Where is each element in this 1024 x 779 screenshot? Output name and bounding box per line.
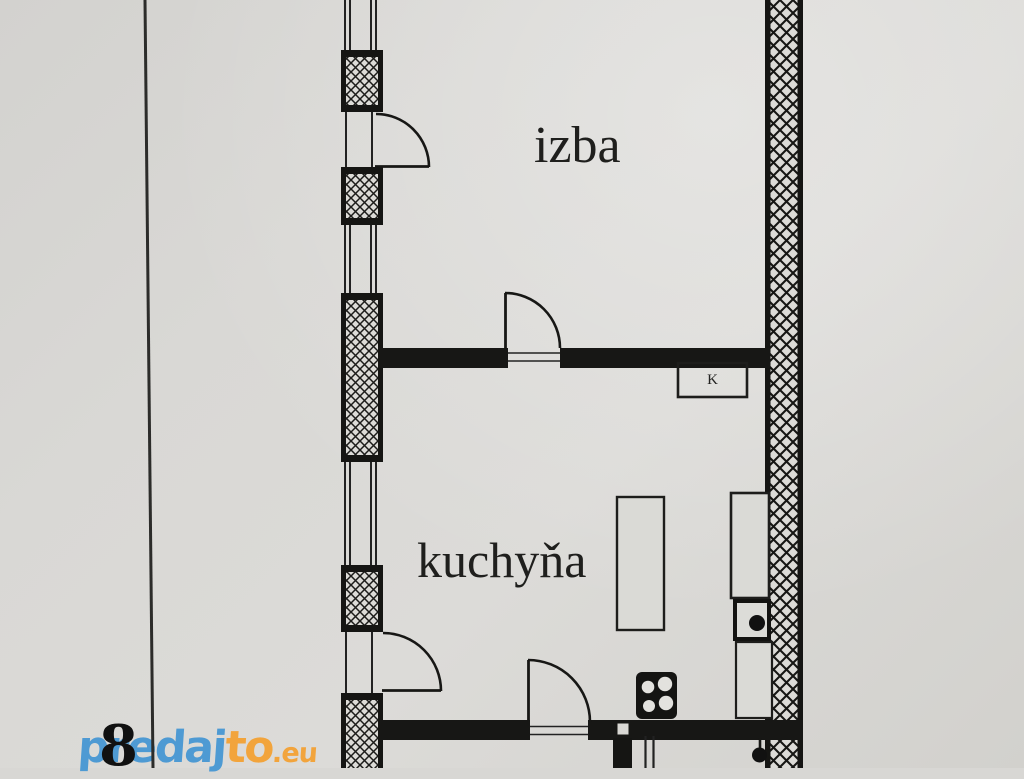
door-hinge-dot (752, 738, 767, 763)
kitchen-island (617, 497, 664, 630)
counter (736, 642, 772, 718)
lower-wall-stub (613, 736, 654, 768)
door-swing-icon (345, 632, 441, 693)
wall-pier (341, 167, 383, 225)
dimension-line (145, 0, 153, 768)
window-icon (344, 225, 377, 293)
door-swing-icon (528, 660, 590, 722)
wall-pier (341, 293, 383, 462)
window-icon (344, 0, 377, 52)
wall-pier (341, 565, 383, 632)
floor-plan-drawing (0, 0, 1024, 768)
window-icon (344, 462, 377, 565)
cabinet-label-k: K (678, 363, 747, 397)
interior-wall-bottom (380, 720, 803, 740)
tall-cabinet (731, 493, 769, 598)
wall-pier (341, 50, 383, 112)
dimension-number: 8 (99, 718, 138, 774)
room-label-izba: izba (534, 120, 621, 172)
door-swing-icon (345, 112, 429, 167)
door-swing-icon (505, 293, 560, 350)
sink-icon (735, 601, 769, 639)
room-label-kuchyna: kuchyňa (417, 533, 586, 588)
stove-icon (636, 672, 677, 719)
wall-pier (341, 693, 383, 768)
